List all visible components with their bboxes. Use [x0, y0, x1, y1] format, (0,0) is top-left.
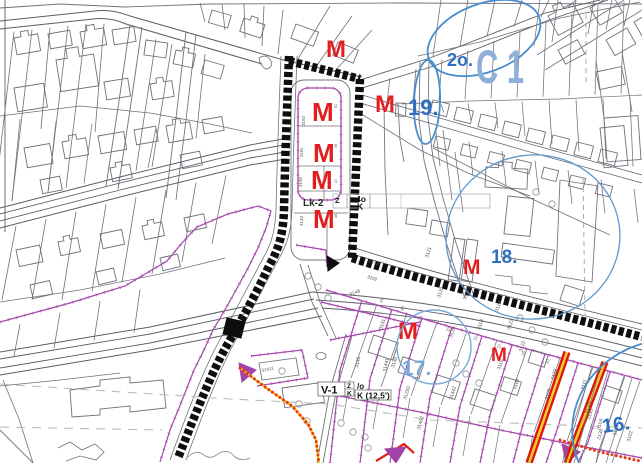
svg-text:M: M	[312, 97, 334, 127]
svg-text:18.: 18.	[491, 247, 517, 268]
svg-text:47: 47	[334, 179, 338, 183]
svg-text:K: K	[357, 202, 364, 212]
svg-text:V-1: V-1	[321, 385, 338, 397]
svg-text:3191: 3191	[299, 147, 304, 157]
svg-text:3143: 3143	[299, 215, 304, 226]
svg-text:17.: 17.	[402, 357, 431, 380]
svg-text:M: M	[313, 138, 335, 168]
svg-text:K (12,5'): K (12,5')	[357, 391, 390, 401]
svg-text:Lk-2: Lk-2	[303, 198, 324, 209]
svg-text:2o.: 2o.	[447, 50, 473, 70]
svg-text:K: K	[347, 391, 352, 398]
svg-text:3190: 3190	[298, 176, 303, 187]
svg-text:Z: Z	[347, 383, 351, 390]
svg-text:M: M	[326, 36, 346, 63]
svg-text:51: 51	[334, 104, 338, 108]
svg-text:16.: 16.	[601, 412, 632, 438]
svg-text:3192: 3192	[301, 115, 306, 126]
svg-text:Z: Z	[335, 196, 340, 205]
svg-text:M: M	[491, 345, 507, 366]
svg-text:M: M	[375, 91, 395, 118]
svg-text:C 1: C 1	[476, 40, 524, 93]
svg-text:M: M	[463, 256, 481, 279]
svg-text:19.: 19.	[408, 95, 439, 120]
svg-text:M: M	[311, 165, 333, 195]
